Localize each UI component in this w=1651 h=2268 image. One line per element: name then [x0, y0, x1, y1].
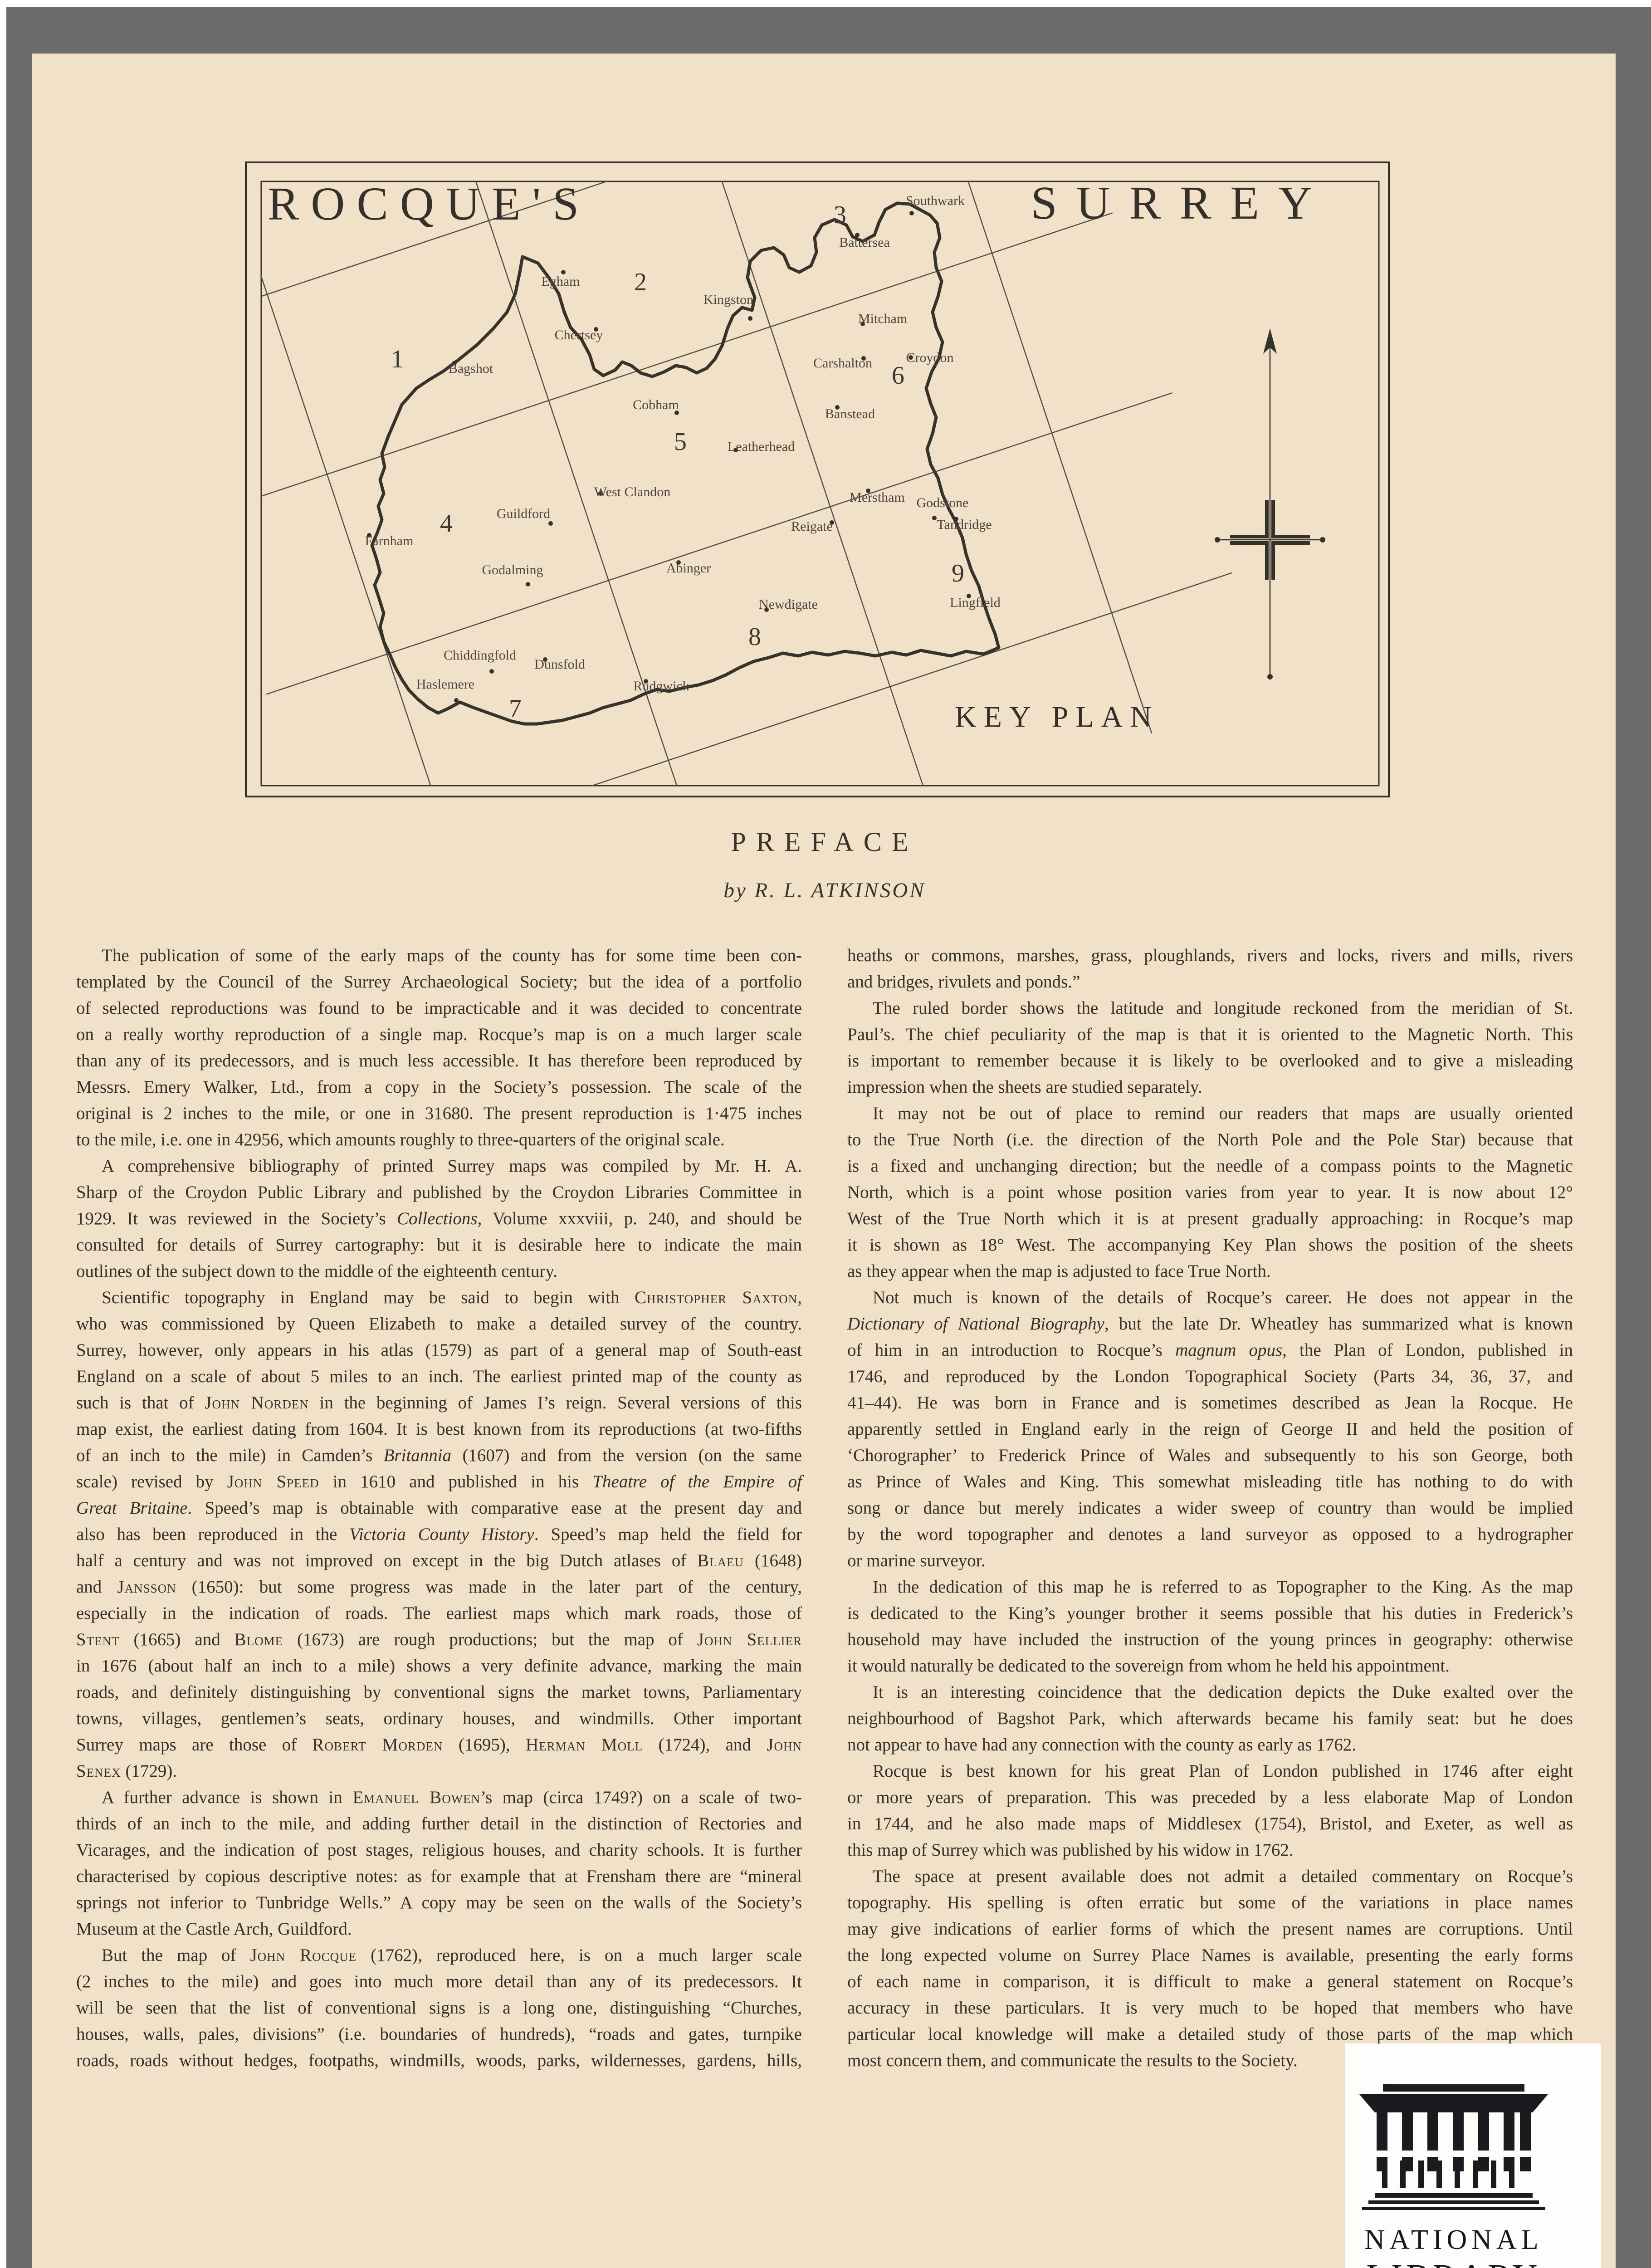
text-line: is a fixed and unchanging direction; but…: [847, 1153, 1573, 1179]
text-line: to the mile, i.e. one in 42956, which am…: [76, 1127, 802, 1153]
byline: by R. L. ATKINSON: [76, 878, 1573, 903]
text-line: Museum at the Castle Arch, Guildford.: [76, 1916, 802, 1942]
text-line: it would naturally be dedicated to the s…: [847, 1653, 1573, 1679]
text-line: roads, and definitely distinguishing by …: [76, 1679, 802, 1706]
text-line: may give indications of earlier forms of…: [847, 1916, 1573, 1942]
text-line: West of the True North which it is at pr…: [847, 1206, 1573, 1232]
logo-text-national: NATIONAL: [1345, 2224, 1563, 2256]
text-line: Senex (1729).: [76, 1758, 802, 1784]
text-column-right: heaths or commons, marshes, grass, ploug…: [847, 943, 1573, 2074]
text-line: towns, villages, gentlemen’s seats, ordi…: [76, 1706, 802, 1732]
text-line: 1746, and reproduced by the London Topog…: [847, 1364, 1573, 1390]
text-line: springs not inferior to Tunbridge Wells.…: [76, 1890, 802, 1916]
text-line: such is that of John Norden in the begin…: [76, 1390, 802, 1416]
text-line: as Prince of Wales and King. This somewh…: [847, 1469, 1573, 1495]
library-building-icon: [1358, 2084, 1549, 2216]
text-line: and Jansson (1650): but some progress wa…: [76, 1574, 802, 1600]
text-line: and bridges, rivulets and ponds.”: [847, 969, 1573, 995]
text-line: characterised by copious descriptive not…: [76, 1863, 802, 1890]
page-title: PREFACE: [76, 826, 1573, 858]
text-line: Stent (1665) and Blome (1673) are rough …: [76, 1627, 802, 1653]
text-line: original is 2 inches to the mile, or one…: [76, 1100, 802, 1127]
text-line: Not much is known of the details of Rocq…: [847, 1285, 1573, 1311]
text-line: The publication of some of the early map…: [76, 943, 802, 969]
text-line: 41–44). He was born in France and is som…: [847, 1390, 1573, 1416]
text-line: by the word topographer and denotes a la…: [847, 1521, 1573, 1548]
text-line: (2 inches to the mile) and goes into muc…: [76, 1969, 802, 1995]
text-line: roads, roads without hedges, footpaths, …: [76, 2048, 802, 2074]
text-line: templated by the Council of the Surrey A…: [76, 969, 802, 995]
text-line: this map of Surrey which was published b…: [847, 1837, 1573, 1863]
text-line: scale) revised by John Speed in 1610 and…: [76, 1469, 802, 1495]
text-line: But the map of John Rocque (1762), repro…: [76, 1942, 802, 1969]
text-line: thirds of an inch to the mile, and addin…: [76, 1811, 802, 1837]
text-line: Vicarages, and the indication of post st…: [76, 1837, 802, 1863]
logo-text-library: LIBRARY: [1345, 2257, 1563, 2268]
text-line: A further advance is shown in Emanuel Bo…: [76, 1784, 802, 1811]
text-line: accuracy in these particulars. It is ver…: [847, 1995, 1573, 2021]
text-line: is important to remember because it is l…: [847, 1048, 1573, 1074]
text-line: England on a scale of about 5 miles to a…: [76, 1364, 802, 1390]
text-line: It is an interesting coincidence that th…: [847, 1679, 1573, 1706]
text-line: In the dedication of this map he is refe…: [847, 1574, 1573, 1600]
text-line: 1929. It was reviewed in the Society’s C…: [76, 1206, 802, 1232]
text-line: Sharp of the Croydon Public Library and …: [76, 1179, 802, 1206]
text-line: the long expected volume on Surrey Place…: [847, 1942, 1573, 1969]
text-line: of an inch to the mile) in Camden’s Brit…: [76, 1442, 802, 1469]
text-column-left: The publication of some of the early map…: [76, 943, 802, 2074]
text-line: Rocque is best known for his great Plan …: [847, 1758, 1573, 1784]
text-line: of selected reproductions was found to b…: [76, 995, 802, 1022]
text-line: neighbourhood of Bagshot Park, which aft…: [847, 1706, 1573, 1732]
text-line: The ruled border shows the latitude and …: [847, 995, 1573, 1022]
text-line: The space at present available does not …: [847, 1863, 1573, 1890]
text-line: Messrs. Emery Walker, Ltd., from a copy …: [76, 1074, 802, 1100]
text-line: half a century and was not improved on e…: [76, 1548, 802, 1574]
text-line: Surrey, however, only appears in his atl…: [76, 1337, 802, 1364]
text-line: Scientific topography in England may be …: [76, 1285, 802, 1311]
text-line: impression when the sheets are studied s…: [847, 1074, 1573, 1100]
text-line: Surrey maps are those of Robert Morden (…: [76, 1732, 802, 1758]
text-line: North, which is a point whose position v…: [847, 1179, 1573, 1206]
text-line: ‘Chorographer’ to Frederick Prince of Wa…: [847, 1442, 1573, 1469]
text-line: or marine surveyor.: [847, 1548, 1573, 1574]
text-line: Great Britaine. Speed’s map is obtainabl…: [76, 1495, 802, 1521]
text-line: than any of its predecessors, and is muc…: [76, 1048, 802, 1074]
text-line: or more years of preparation. This was p…: [847, 1784, 1573, 1811]
text-line: especially in the indication of roads. T…: [76, 1600, 802, 1627]
text-line: to the True North (i.e. the direction of…: [847, 1127, 1573, 1153]
text-line: not appear to have had any connection wi…: [847, 1732, 1573, 1758]
text-line: song or dance but merely indicates a wid…: [847, 1495, 1573, 1521]
text-line: apparently settled in England early in t…: [847, 1416, 1573, 1442]
text-line: it is shown as 18° West. The accompanyin…: [847, 1232, 1573, 1258]
text-line: consulted for details of Surrey cartogra…: [76, 1232, 802, 1258]
text-line: Paul’s. The chief peculiarity of the map…: [847, 1022, 1573, 1048]
text-line: heaths or commons, marshes, grass, ploug…: [847, 943, 1573, 969]
text-line: Dictionary of National Biography, but th…: [847, 1311, 1573, 1337]
text-line: as they appear when the map is adjusted …: [847, 1258, 1573, 1285]
text-line: It may not be out of place to remind our…: [847, 1100, 1573, 1127]
text-line: of him in an introduction to Rocque’s ma…: [847, 1337, 1573, 1364]
text-line: in 1744, and he also made maps of Middle…: [847, 1811, 1573, 1837]
text-line: is dedicated to the King’s younger broth…: [847, 1600, 1573, 1627]
text-line: will be seen that the list of convention…: [76, 1995, 802, 2021]
text-line: of each name in comparison, it is diffic…: [847, 1969, 1573, 1995]
text-line: on a really worthy reproduction of a sin…: [76, 1022, 802, 1048]
text-line: in 1676 (about half an inch to a mile) s…: [76, 1653, 802, 1679]
text-line: who was commissioned by Queen Elizabeth …: [76, 1311, 802, 1337]
text-line: A comprehensive bibliography of printed …: [76, 1153, 802, 1179]
text-line: also has been reproduced in the Victoria…: [76, 1521, 802, 1548]
text-line: outlines of the subject down to the midd…: [76, 1258, 802, 1285]
text-line: topography. His spelling is often errati…: [847, 1890, 1573, 1916]
text-line: map exist, the earliest dating from 1604…: [76, 1416, 802, 1442]
text-line: household may have included the instruct…: [847, 1627, 1573, 1653]
text-line: houses, walls, pales, divisions” (i.e. b…: [76, 2021, 802, 2048]
